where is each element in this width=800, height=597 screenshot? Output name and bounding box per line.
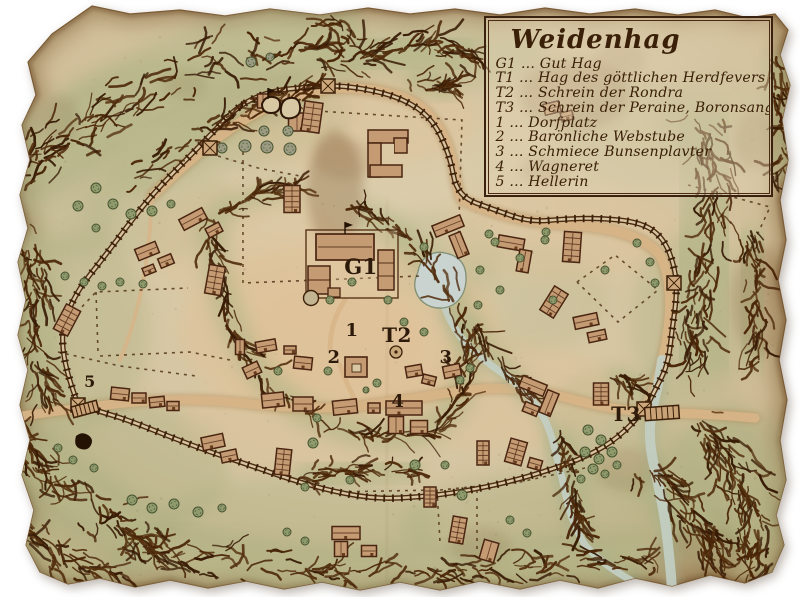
tree	[326, 296, 334, 304]
tree	[91, 183, 101, 193]
building	[167, 402, 179, 411]
legend-entry: 3 ... Schmiece Bunsenplavter	[496, 145, 765, 160]
building	[236, 340, 245, 355]
tree	[116, 278, 124, 286]
tree	[193, 507, 203, 517]
tree	[633, 239, 641, 247]
tree	[54, 444, 62, 452]
tree	[491, 238, 499, 246]
tree	[169, 499, 179, 509]
building	[411, 421, 428, 434]
building	[110, 387, 129, 401]
tree	[485, 230, 493, 238]
tree	[476, 266, 484, 274]
tree	[246, 57, 256, 67]
tree	[516, 254, 524, 262]
gate	[203, 141, 217, 155]
gate	[321, 79, 335, 93]
legend-entry: 1 ... Dorfplatz	[496, 116, 765, 131]
building	[332, 399, 357, 415]
legend-title: Weidenhag	[489, 26, 769, 54]
tree	[73, 201, 83, 211]
building	[293, 356, 312, 370]
tree	[308, 438, 318, 448]
legend-entry: T3 ... Schrein der Peraine, Boronsanger	[496, 101, 765, 116]
legend-entry: 4 ... Wagneret	[496, 160, 765, 175]
gate	[667, 276, 681, 290]
building	[362, 546, 377, 557]
tree	[147, 206, 157, 216]
tree	[274, 367, 282, 375]
building	[132, 393, 146, 403]
map-label-5: 5	[84, 372, 96, 391]
legend-entry: T1 ... Hag des göttlichen Herdfevers	[496, 71, 765, 86]
rock	[262, 97, 280, 113]
tree	[496, 286, 504, 294]
building	[284, 186, 300, 213]
building	[368, 403, 380, 413]
tree	[596, 435, 606, 445]
tree	[613, 461, 621, 469]
tree	[126, 209, 136, 219]
legend-entry: T2 ... Schrein der Rondra	[496, 86, 765, 101]
building	[477, 441, 489, 465]
tree	[301, 537, 309, 545]
map-label-3: 3	[439, 347, 452, 368]
map-label-2: 2	[327, 347, 340, 368]
tree	[363, 387, 369, 393]
building	[389, 417, 404, 434]
map-label-t3: T3	[611, 402, 641, 426]
tree	[139, 280, 147, 288]
tree	[92, 224, 100, 232]
tree	[266, 53, 274, 61]
tree	[588, 464, 598, 474]
tree	[506, 516, 514, 524]
tree	[549, 296, 557, 304]
tree	[474, 301, 482, 309]
tree	[457, 490, 467, 500]
temple-building	[368, 130, 408, 177]
rock	[281, 98, 300, 118]
tree	[98, 282, 106, 290]
bridge	[645, 405, 680, 420]
tree	[283, 528, 291, 536]
building	[335, 542, 348, 557]
tree	[301, 483, 309, 491]
tree	[147, 503, 157, 513]
tree	[167, 200, 175, 208]
tree	[601, 470, 609, 478]
building	[255, 339, 277, 353]
legend-inner-border: Weidenhag G1 ... Gut HagT1 ... Hag des g…	[488, 20, 770, 194]
tree	[523, 529, 531, 537]
tree	[384, 296, 392, 304]
map-label-t2: T2	[382, 323, 412, 347]
tree	[541, 236, 549, 244]
tree	[580, 447, 590, 457]
tree	[607, 447, 617, 457]
tree	[420, 243, 428, 251]
tree	[217, 143, 227, 153]
building	[284, 346, 296, 354]
tree	[420, 328, 428, 336]
legend-entry: 2 ... Barönliche Webstube	[496, 130, 765, 145]
legend-entry: G1 ... Gut Hag	[496, 57, 765, 72]
tree	[127, 495, 137, 505]
building	[274, 448, 292, 475]
tree	[346, 476, 354, 484]
building	[301, 101, 323, 133]
tree	[651, 279, 659, 287]
tree	[410, 460, 420, 470]
map-label-g1: G1	[344, 254, 378, 279]
legend-entries: G1 ... Gut HagT1 ... Hag des göttlichen …	[489, 57, 769, 190]
tree	[259, 126, 269, 136]
tree	[466, 364, 474, 372]
building	[594, 383, 609, 405]
legend-panel: Weidenhag G1 ... Gut HagT1 ... Hag des g…	[484, 16, 773, 197]
screenshot-root: G11T22345T3 Weidenhag G1 ... Gut HagT1 .…	[0, 0, 800, 597]
building	[220, 449, 238, 463]
tree	[373, 379, 381, 387]
tree	[456, 376, 464, 384]
tree	[441, 461, 449, 469]
building	[261, 392, 284, 408]
tree	[90, 464, 98, 472]
tree	[542, 228, 550, 236]
map-label-1: 1	[345, 320, 358, 341]
tree	[261, 141, 273, 153]
tree	[239, 140, 251, 152]
tree	[284, 143, 296, 155]
building	[149, 396, 165, 408]
tree	[583, 425, 593, 435]
building	[424, 487, 436, 507]
map-label-4: 4	[391, 391, 404, 412]
building	[345, 357, 367, 377]
tree	[80, 278, 88, 286]
tree	[61, 272, 69, 280]
tree	[313, 414, 321, 422]
tree	[646, 258, 654, 266]
tree	[348, 278, 356, 286]
building	[405, 364, 423, 378]
building	[332, 527, 360, 540]
building	[562, 231, 581, 262]
tree	[577, 475, 585, 483]
tree	[69, 456, 77, 464]
tree	[324, 367, 332, 375]
tree	[283, 126, 293, 136]
tree	[108, 199, 118, 209]
tree	[594, 454, 604, 464]
tree	[601, 266, 609, 274]
tree	[218, 504, 226, 512]
legend-entry: 5 ... Hellerin	[496, 175, 765, 190]
building	[293, 397, 313, 411]
